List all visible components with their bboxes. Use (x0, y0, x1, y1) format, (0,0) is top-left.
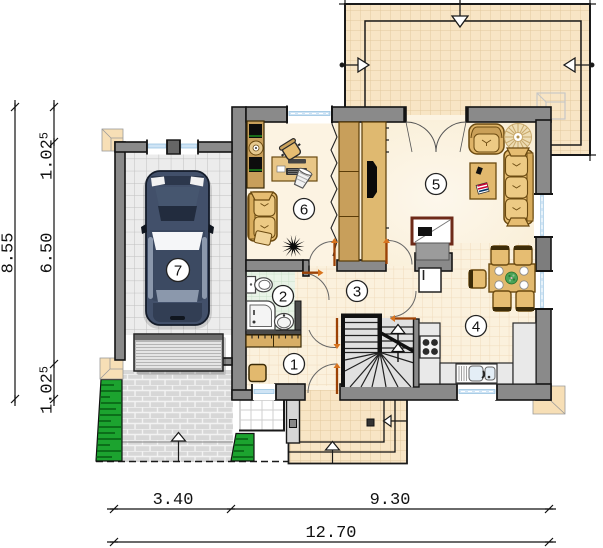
svg-text:9.30: 9.30 (370, 491, 411, 510)
svg-text:3: 3 (353, 284, 361, 301)
svg-text:1: 1 (290, 357, 298, 374)
svg-text:8.55: 8.55 (0, 233, 19, 274)
svg-text:3.40: 3.40 (153, 491, 194, 510)
svg-text:12.70: 12.70 (305, 524, 356, 543)
svg-text:6.50: 6.50 (39, 233, 58, 274)
svg-text:6: 6 (300, 202, 308, 219)
svg-text:1.025: 1.025 (38, 132, 58, 180)
svg-text:5: 5 (432, 177, 440, 194)
svg-text:2: 2 (279, 289, 287, 306)
svg-text:7: 7 (174, 263, 182, 280)
svg-text:1.025: 1.025 (38, 366, 58, 414)
svg-text:4: 4 (472, 319, 480, 336)
